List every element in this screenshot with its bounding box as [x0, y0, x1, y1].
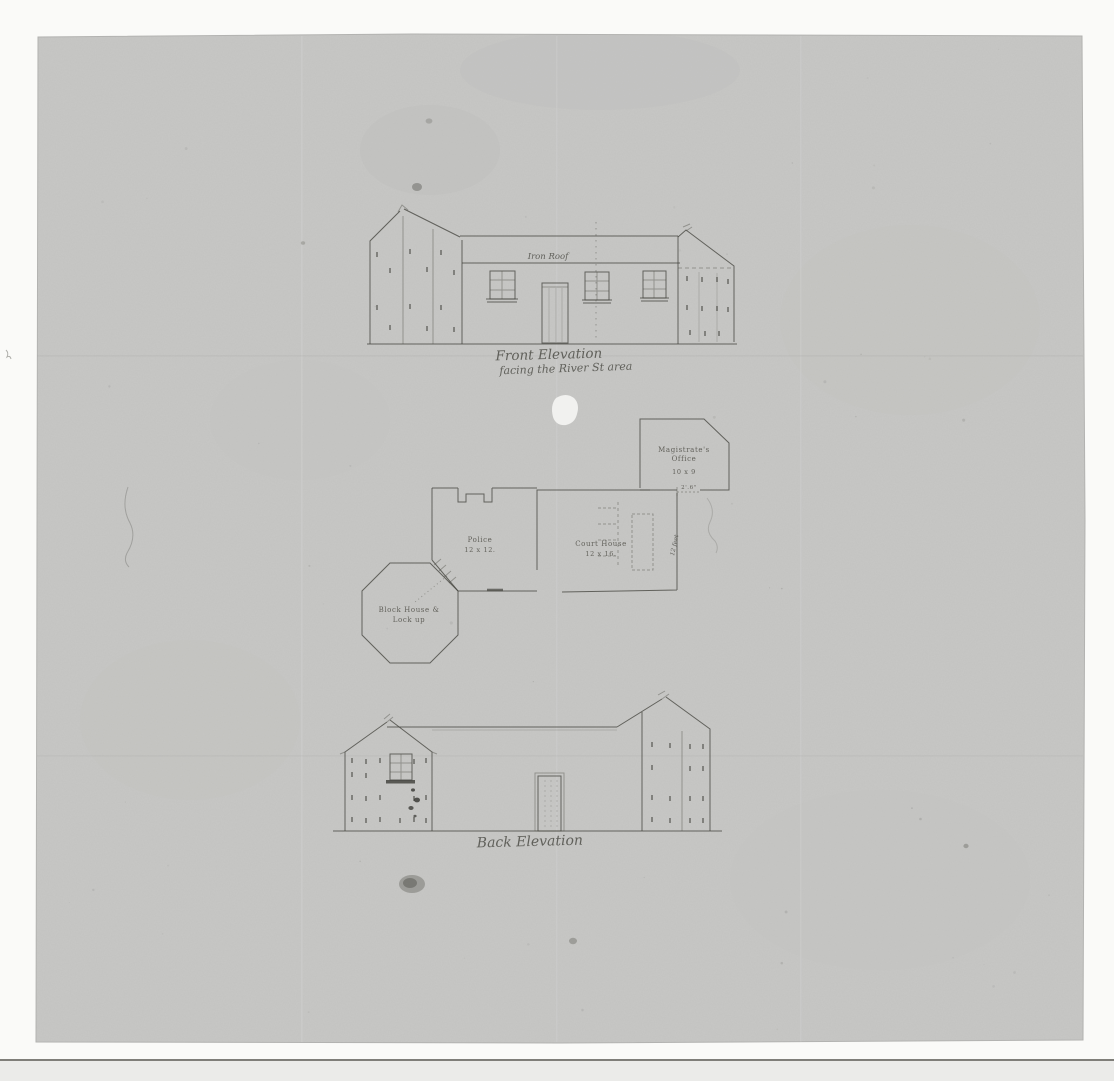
paper-speck	[92, 889, 94, 891]
paper-speck	[69, 902, 70, 903]
paper-speck	[349, 465, 351, 467]
paper-speck	[781, 588, 783, 590]
police-label: Police	[468, 536, 493, 544]
paper-speck	[989, 143, 991, 145]
paper-speck	[929, 358, 932, 361]
paper-speck	[386, 628, 388, 630]
paper-speck	[581, 1009, 584, 1012]
paper-speck	[998, 49, 999, 50]
paper-speck	[450, 621, 453, 624]
paper-speck	[785, 911, 788, 914]
fold-line-horizontal	[37, 755, 1083, 757]
paper-speck	[983, 964, 984, 965]
fold-line-vertical	[556, 36, 558, 1042]
paper-speck	[525, 216, 527, 218]
scanner-bed-lower	[0, 1061, 1114, 1081]
paper-speck	[533, 681, 534, 682]
paper-speck	[258, 443, 260, 445]
paper-speck	[162, 933, 164, 935]
paper-speck	[855, 416, 857, 418]
paper-speck	[776, 1029, 778, 1031]
paper-speck	[919, 818, 922, 821]
paper-speck	[125, 802, 126, 803]
paper-speck	[101, 201, 104, 204]
paper-speck	[952, 957, 954, 959]
paper-speck	[823, 380, 826, 383]
svg-text:Office: Office	[672, 455, 697, 463]
paper-speck	[679, 249, 681, 251]
stain-blot	[569, 938, 577, 944]
paper-speck	[769, 587, 770, 588]
magistrates-office-dimensions: 10 x 9	[672, 468, 696, 476]
paper-speck	[792, 162, 793, 163]
magistrates-office-label: Magistrate's	[658, 446, 710, 454]
paper-speck	[167, 865, 169, 867]
stain-blot-core	[403, 878, 417, 888]
paper-speck	[375, 306, 376, 307]
paper-speck	[911, 807, 913, 809]
paper-speck	[992, 985, 995, 988]
paper-sheet	[30, 30, 1090, 1050]
paper-speck	[924, 356, 925, 357]
police-dimensions: 12 x 12.	[464, 546, 495, 554]
paper-speck	[867, 77, 869, 79]
stain-blot	[426, 118, 433, 123]
paper-speck	[1048, 894, 1050, 896]
fold-line-vertical	[301, 36, 303, 1042]
stain-blot	[412, 183, 422, 191]
paper-speck	[359, 860, 361, 862]
court-house-dimensions: 12 x 16.	[585, 550, 616, 558]
court-house-label: Court House	[575, 540, 627, 548]
paper-speck	[873, 165, 875, 167]
scanner-edge-line	[0, 1059, 1114, 1061]
block-house-label: Block House &	[379, 606, 440, 614]
paper-speck	[308, 1011, 310, 1013]
scanned-drawing-page: Iron Roof Front Elevation facing the Riv…	[0, 0, 1114, 1081]
paper-speck	[962, 419, 965, 422]
svg-text:Lock up: Lock up	[393, 616, 425, 624]
paper-speck	[464, 958, 465, 959]
fold-line-vertical	[800, 36, 802, 1042]
stain-blot	[301, 241, 305, 245]
window-sill	[386, 780, 415, 784]
paper-speck	[498, 278, 499, 279]
door-width-annotation: 2'.6"	[681, 485, 697, 491]
paper-speck	[146, 198, 148, 200]
iron-roof-label: Iron Roof	[527, 252, 570, 262]
paper-speck	[673, 206, 675, 208]
stain-blot	[963, 844, 968, 848]
paper-speck	[527, 943, 530, 946]
paper-speck	[731, 503, 732, 504]
paper-speck	[764, 462, 765, 463]
paper-speck	[1013, 971, 1016, 974]
paper-speck	[872, 186, 875, 189]
paper-speck	[780, 962, 783, 965]
back-elevation-title: Back Elevation	[476, 833, 584, 852]
scan-canvas: Iron Roof Front Elevation facing the Riv…	[0, 0, 1114, 1081]
paper-speck	[644, 877, 645, 878]
paper-speck	[185, 147, 188, 150]
paper-speck	[108, 385, 110, 387]
paper-speck	[860, 354, 861, 355]
paper-speck	[308, 565, 310, 567]
paper-speck	[323, 603, 324, 604]
paper-speck	[726, 253, 728, 255]
paper-speck	[713, 416, 716, 419]
